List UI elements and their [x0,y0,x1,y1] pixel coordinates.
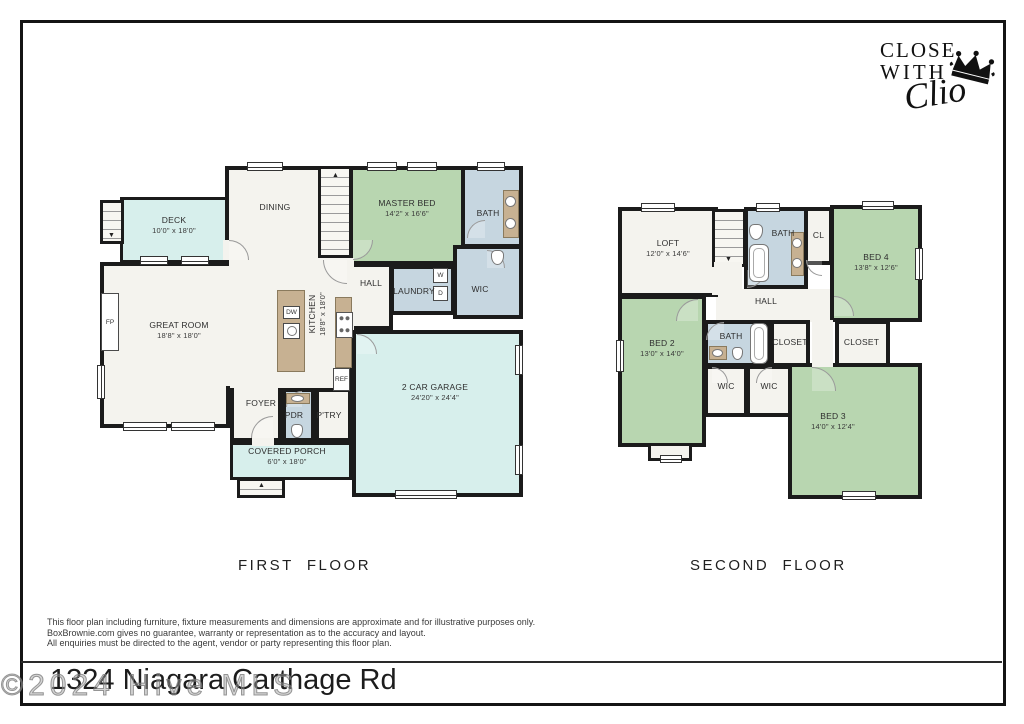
window [616,340,624,372]
first-floor-plan: ▼ ▲ ▲ [95,160,527,506]
door-arc [806,260,822,276]
laundry-label: LAUNDRY [389,286,439,296]
second-floor-plan: ▼ [616,200,928,502]
stove [336,312,353,338]
stairs-arrow-icon: ▼ [725,256,732,263]
window [407,162,437,171]
sink-icon [505,218,516,229]
sink-icon [712,349,723,357]
second-floor-title: SECOND FLOOR [690,557,847,574]
main-stairs [318,166,352,258]
upstairs-hall-label: HALL [736,296,796,306]
washer: W [433,268,448,283]
sink-icon [287,326,297,336]
window [140,256,168,265]
hall-label: HALL [347,278,395,288]
window [915,248,923,280]
wic-label: WIC [457,284,503,294]
mls-watermark: ©2024 Hive MLS [1,669,298,703]
garage-label: 2 CAR GARAGE24'20" x 24'4" [380,382,490,402]
window [247,162,283,171]
island-sink [283,323,300,339]
first-floor-title: FIRST FLOOR [238,557,371,574]
great-room-label: GREAT ROOM18'8" x 18'0" [127,320,231,340]
bed3-room [788,363,922,499]
bed2-label: BED 213'0" x 14'0" [624,338,700,358]
window [515,345,523,375]
foyer-label: FOYER [237,398,285,408]
wic-left-label: WIC [704,381,748,391]
dishwasher: DW [283,306,300,319]
upper-bath-label: BATH [762,228,804,238]
stairs-arrow-icon: ▲ [332,172,339,179]
disclaimer: This floor plan including furniture, fix… [47,617,535,649]
loft-label: LOFT12'0" x 14'6" [630,238,706,258]
address-band-divider [21,661,1002,663]
window [367,162,397,171]
garage-door [395,490,457,499]
pdr-label: PDR [279,410,309,420]
garage-room [352,330,523,497]
close-with-clio-logo: CLOSE WITH Clio [868,36,1014,124]
bed4-label: BED 413'8" x 12'6" [840,252,912,272]
fireplace-label: FP [106,319,114,326]
window [862,201,894,210]
window [97,365,105,399]
master-bed-label: MASTER BED14'2" x 16'6" [357,198,457,218]
stairs-arrow-icon: ▼ [108,232,115,239]
window [181,256,209,265]
disclaimer-line: All enquiries must be directed to the ag… [47,638,535,649]
wic-right-label: WIC [746,381,792,391]
floor-opening [229,258,319,272]
kitchen-label: KITCHEN18'8" x 18'0" [307,268,327,360]
window [641,203,675,212]
covered-porch-label: COVERED PORCH6'0" x 18'0" [237,446,337,466]
disclaimer-line: This floor plan including furniture, fix… [47,617,535,628]
dishwasher-label: DW [286,309,297,316]
closet-right-label: CLOSET [833,337,890,347]
tub-icon [750,323,768,364]
closet-left-label: CLOSET [768,337,812,347]
hall-room [349,263,393,330]
stairs-arrow-icon: ▲ [258,482,265,489]
cl-label: CL [804,230,833,240]
fireplace: FP [101,293,119,351]
logo-clio-script: Clio [901,67,969,118]
window [842,491,876,500]
bath-label: BATH [465,208,511,218]
floor-opening [712,275,722,295]
window [123,422,167,431]
window [756,203,780,212]
window [660,455,682,463]
window [477,162,505,171]
floor-opening [812,320,833,367]
refrigerator: REF [333,368,350,391]
floor-opening [234,386,278,396]
door-opening [252,437,274,446]
window [515,445,523,475]
sink-icon [505,196,516,207]
sink-icon [291,395,304,402]
window [171,422,215,431]
bath2-label: BATH [708,331,754,341]
great-room-west [100,262,230,428]
dining-label: DINING [235,202,315,212]
sink-icon [792,238,802,248]
deck-label: DECK10'0" x 18'0" [120,215,228,235]
pantry-label: P'TRY [307,410,351,420]
washer-label: W [437,272,443,279]
tub-icon [749,244,769,282]
refrigerator-label: REF [335,376,348,383]
bed3-label: BED 314'0" x 12'4" [795,411,871,431]
disclaimer-line: BoxBrownie.com gives no guarantee, warra… [47,628,535,639]
wic-left-room [704,365,748,417]
floor-plan-page: ▼ ▲ ▲ [0,0,1024,724]
sink-icon [792,258,802,268]
